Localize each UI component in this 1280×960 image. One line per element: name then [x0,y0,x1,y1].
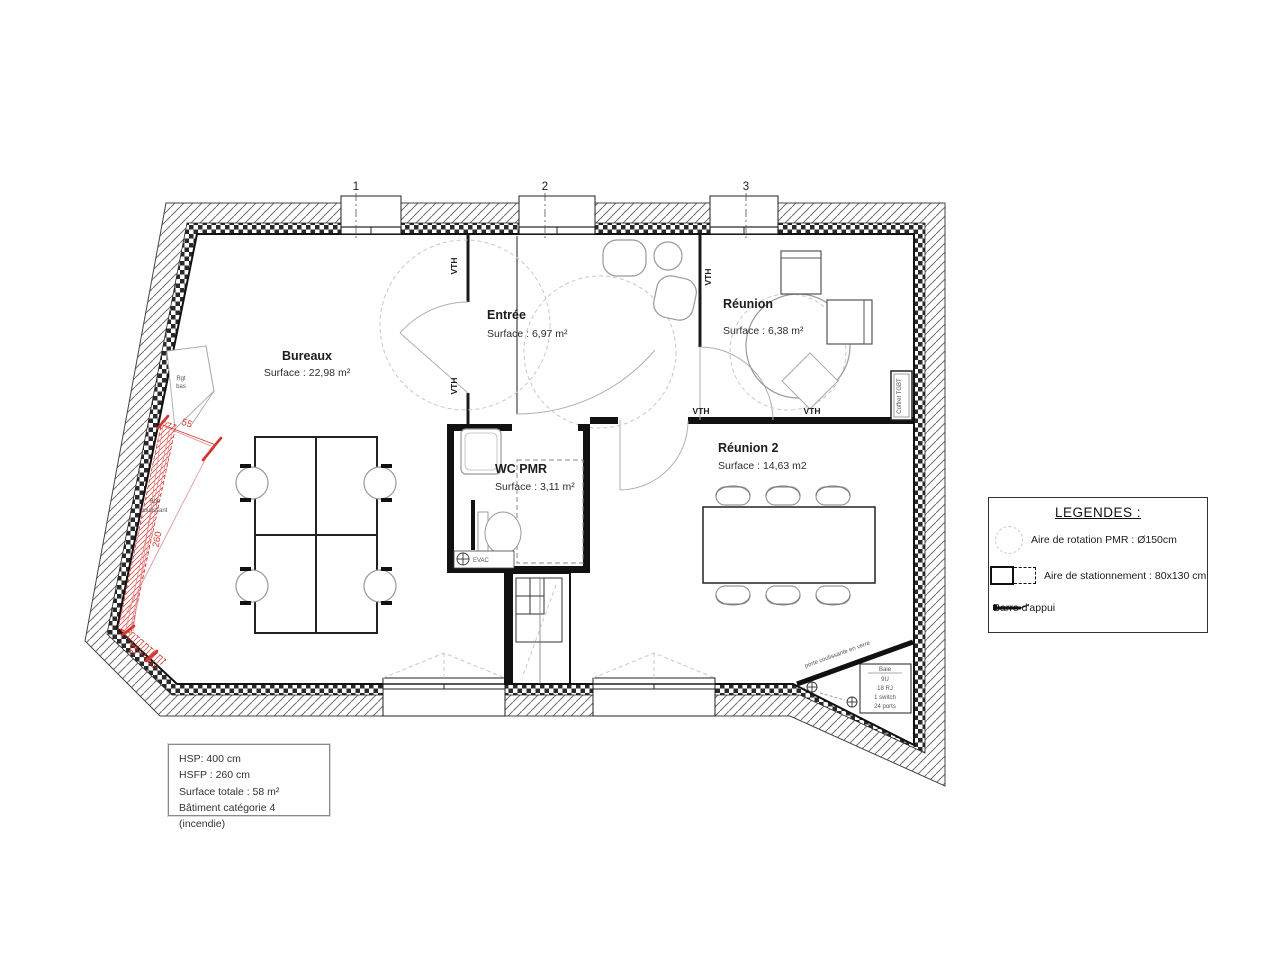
rgt-bas-label-2: bas [176,384,186,390]
info-line-batiment: Bâtiment catégorie 4 (incendie) [179,800,319,833]
dashed-circle-symbol [995,526,1023,554]
legend-box: LEGENDES : Aire de rotation PMR : Ø150cm… [988,497,1208,633]
room-surface-bureaux: Surface : 22,98 m² [264,367,351,379]
rgt-coulissant-label-2: coulissant [141,508,168,514]
room-name-bureaux: Bureaux [282,349,332,363]
coffret-label: Coffret TGBT [897,378,903,414]
bay-line-3: 1 switch [874,695,896,701]
rgt-bas-label-1: Rgt [176,376,186,382]
vth-label: VTH [693,406,710,416]
room-surface-reunion: Surface : 6,38 m² [723,325,804,337]
room-name-reunion: Réunion [723,297,773,311]
window-1 [341,193,401,238]
dim-22: 22 [127,643,140,655]
info-line-hsp: HSP: 400 cm [179,751,319,767]
rgt-coulissant-label-1: Rgt [149,499,159,505]
room-name-wc-pmr: WC PMR [495,462,547,476]
bay-line-1: 9U [881,677,889,683]
toilet [478,512,521,554]
info-box: HSP: 400 cm HSFP : 260 cm Surface totale… [168,744,330,816]
room-surface-reunion2: Surface : 14,63 m2 [718,460,807,472]
legend-item-grab-bar: Barre d'appui [993,602,1055,614]
vth-label: VTH [449,258,459,275]
floor-plan-page: 1 2 3 [0,0,1280,960]
parking-rect-symbol [990,566,1036,585]
legend-title: LEGENDES : [989,505,1207,520]
info-line-surface: Surface totale : 58 m² [179,784,319,800]
legend-item-rotation: Aire de rotation PMR : Ø150cm [995,526,1177,554]
room-name-reunion2: Réunion 2 [718,441,778,455]
evac-label: EVAC [473,558,490,564]
technical-shaft [505,573,570,684]
room-surface-entree: Surface : 6,97 m² [487,328,568,340]
room-name-entree: Entrée [487,308,526,322]
evac-marker: EVAC [454,551,514,568]
vth-label: VTH [804,406,821,416]
grid-mark-2: 2 [542,181,548,193]
bay-line-2: 18 RJ [877,686,893,692]
room-surface-wc-pmr: Surface : 3,11 m² [495,481,575,493]
info-line-hsfp: HSFP : 260 cm [179,767,319,783]
electrical-cabinet: Coffret TGBT [891,371,912,420]
window-2 [519,193,595,238]
network-bay: Baie 9U 18 RJ 1 switch 24 ports [860,664,911,713]
grab-bar-symbol [993,602,1029,614]
bureaux-desks [236,437,396,633]
grid-mark-1: 1 [353,181,359,193]
legend-item-label: Aire de stationnement : 80x130 cm [1044,570,1206,582]
window-3 [710,193,778,238]
bay-line-4: 24 ports [874,704,896,710]
grid-mark-3: 3 [743,181,749,193]
legend-item-parking: Aire de stationnement : 80x130 cm [990,566,1206,585]
bay-title: Baie [879,667,892,673]
vth-label: VTH [703,269,713,286]
vth-label: VTH [449,378,459,395]
legend-item-label: Aire de rotation PMR : Ø150cm [1031,534,1177,546]
